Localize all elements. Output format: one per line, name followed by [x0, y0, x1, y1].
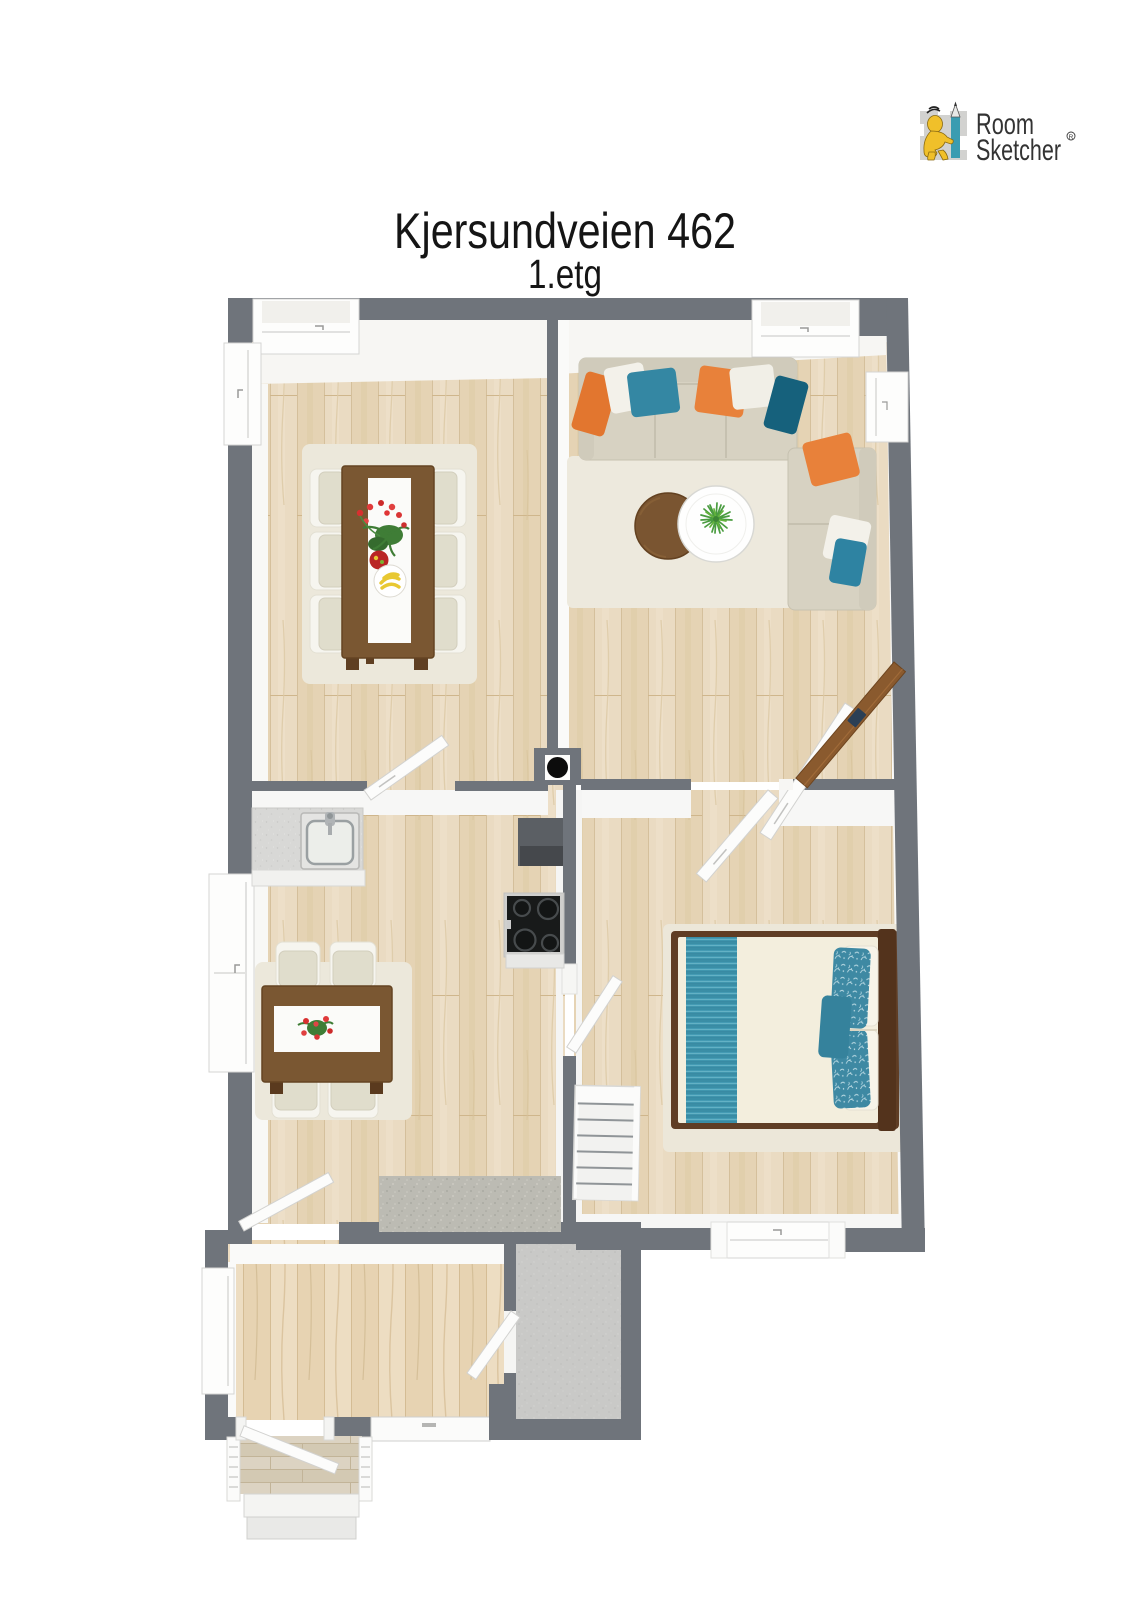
svg-text:R: R — [1069, 134, 1074, 141]
svg-text:1.etg: 1.etg — [528, 251, 602, 297]
svg-text:Sketcher: Sketcher — [976, 134, 1061, 167]
